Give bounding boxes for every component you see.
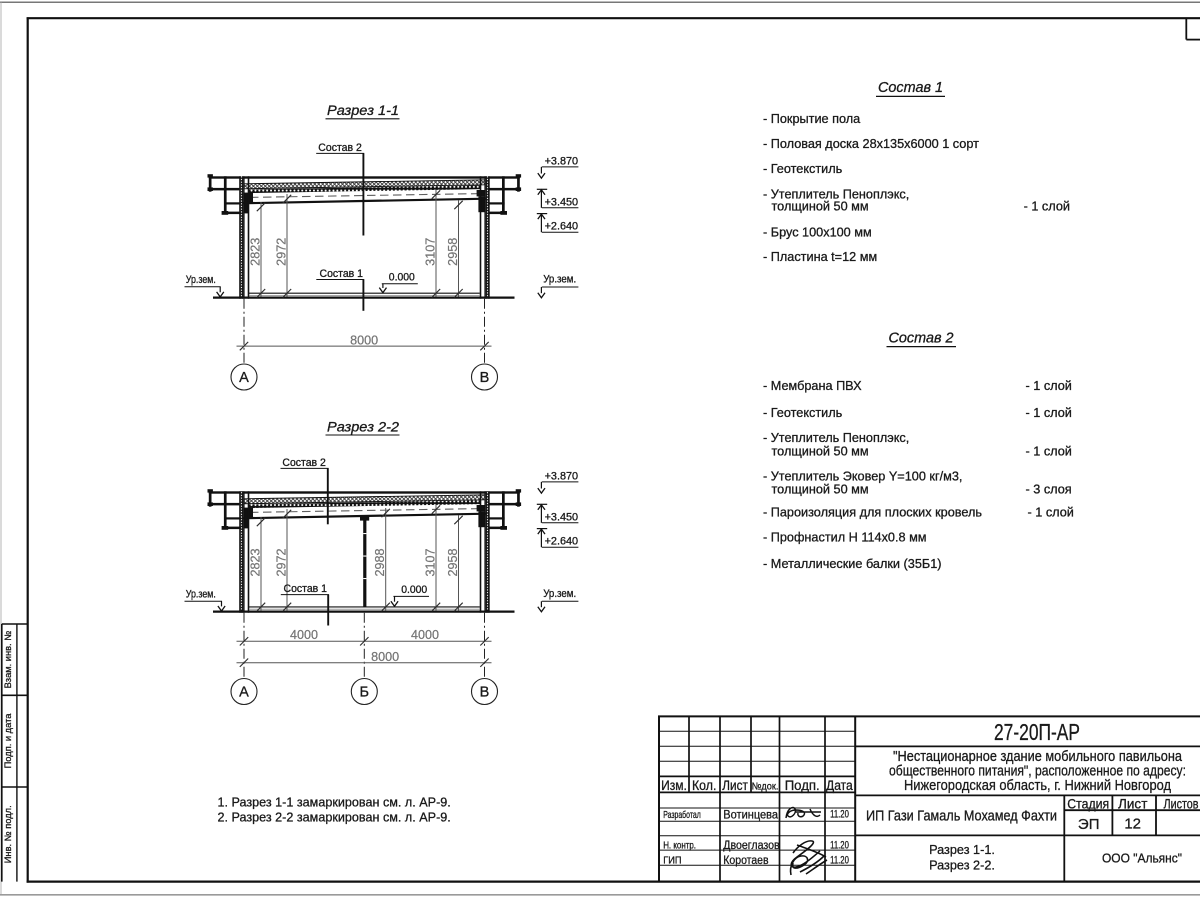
svg-text:толщиной 50 мм: толщиной 50 мм [772, 200, 869, 214]
svg-text:3107: 3107 [423, 238, 437, 266]
svg-text:11.20: 11.20 [830, 840, 849, 852]
svg-text:- 1 слой: - 1 слой [1024, 200, 1070, 214]
svg-text:Кол.: Кол. [692, 778, 716, 793]
svg-text:1. Разрез 1-1 замаркирован см.: 1. Разрез 1-1 замаркирован см. л. АР-9. [218, 794, 451, 809]
svg-text:Подп. и дата: Подп. и дата [3, 713, 13, 769]
svg-text:- Мембрана ПВХ: - Мембрана ПВХ [763, 379, 862, 393]
svg-text:- Утеплитель Эковер Y=100 кг/м: - Утеплитель Эковер Y=100 кг/м3, [763, 469, 962, 483]
svg-text:Ур.зем.: Ур.зем. [186, 588, 216, 600]
svg-text:Состав 1: Состав 1 [320, 268, 364, 280]
svg-text:+3.870: +3.870 [545, 156, 579, 168]
svg-text:2958: 2958 [446, 548, 460, 576]
svg-text:- 1 слой: - 1 слой [1026, 444, 1072, 458]
svg-text:В: В [480, 370, 490, 386]
svg-text:- Пароизоляция для плоских кро: - Пароизоляция для плоских кровель [763, 506, 982, 520]
svg-text:11.20: 11.20 [830, 855, 849, 867]
svg-text:А: А [239, 370, 249, 386]
svg-text:толщиной 50 мм: толщиной 50 мм [772, 483, 869, 497]
svg-text:- Покрытие пола: - Покрытие пола [763, 112, 861, 126]
svg-text:Разрез 1-1: Разрез 1-1 [327, 103, 399, 118]
svg-text:12: 12 [1124, 815, 1141, 832]
svg-text:- 1 слой: - 1 слой [1026, 379, 1072, 393]
svg-text:- Геотекстиль: - Геотекстиль [763, 406, 843, 420]
svg-text:Дата: Дата [826, 778, 853, 793]
svg-text:Листов: Листов [1164, 796, 1199, 811]
svg-text:Разрез 1-1.: Разрез 1-1. [929, 843, 995, 857]
svg-text:- Половая доска 28х135х6000 1: - Половая доска 28х135х6000 1 сорт [763, 137, 979, 151]
svg-text:+3.450: +3.450 [545, 196, 579, 208]
svg-text:+3.870: +3.870 [545, 471, 579, 483]
svg-text:Ур.зем.: Ур.зем. [543, 274, 576, 286]
svg-text:Ур.зем.: Ур.зем. [186, 274, 216, 286]
svg-text:2823: 2823 [248, 548, 262, 576]
svg-text:ЭП: ЭП [1078, 816, 1100, 833]
svg-text:"Нестационарное здание мобильн: "Нестационарное здание мобильного павиль… [893, 749, 1183, 765]
svg-text:+2.640: +2.640 [545, 221, 579, 233]
svg-text:В: В [480, 685, 490, 701]
svg-text:Инв. № подл.: Инв. № подл. [3, 805, 13, 863]
svg-text:2972: 2972 [274, 238, 288, 266]
svg-text:2. Разрез 2-2 замаркирован см.: 2. Разрез 2-2 замаркирован см. л. АР-9. [218, 809, 451, 824]
svg-text:2823: 2823 [248, 238, 262, 266]
svg-text:- 1 слой: - 1 слой [1028, 506, 1074, 520]
svg-text:Состав 1: Состав 1 [284, 583, 328, 595]
svg-text:Состав 1: Состав 1 [878, 79, 943, 96]
svg-text:2972: 2972 [274, 548, 288, 576]
svg-text:Лист: Лист [722, 778, 748, 793]
svg-text:3107: 3107 [423, 548, 437, 576]
svg-text:Разрез 2-2: Разрез 2-2 [327, 419, 400, 434]
svg-text:Состав 2: Состав 2 [282, 457, 326, 469]
svg-text:Н. контр.: Н. контр. [663, 841, 696, 852]
svg-text:- Утеплитель Пеноплэкс,: - Утеплитель Пеноплэкс, [763, 431, 909, 445]
svg-text:ИП Гази Гамаль Мохамед Фахти: ИП Гази Гамаль Мохамед Фахти [866, 809, 1057, 825]
svg-text:- Геотекстиль: - Геотекстиль [763, 162, 843, 176]
svg-text:2958: 2958 [446, 238, 460, 266]
svg-text:4000: 4000 [290, 628, 318, 642]
svg-text:4000: 4000 [411, 628, 439, 642]
svg-text:11.20: 11.20 [830, 809, 849, 821]
svg-text:Состав 2: Состав 2 [318, 142, 362, 154]
svg-text:ГИП: ГИП [663, 855, 681, 866]
svg-text:№док.: №док. [752, 781, 779, 792]
svg-text:+3.450: +3.450 [545, 511, 579, 523]
svg-text:Нижегородская область, г. Нижн: Нижегородская область, г. Нижний Новгоро… [904, 778, 1171, 794]
svg-text:Состав 2: Состав 2 [889, 329, 955, 346]
svg-text:8000: 8000 [350, 334, 378, 348]
svg-text:Подп.: Подп. [785, 778, 820, 793]
svg-text:Изм.: Изм. [661, 778, 687, 793]
svg-text:Лист: Лист [1118, 796, 1148, 811]
svg-text:Разрез 2-2.: Разрез 2-2. [929, 859, 995, 873]
svg-text:Двоеглазов: Двоеглазов [723, 838, 780, 852]
svg-text:+2.640: +2.640 [545, 536, 579, 548]
svg-text:- Брус 100х100 мм: - Брус 100х100 мм [763, 225, 872, 239]
svg-text:- 1 слой: - 1 слой [1026, 406, 1072, 420]
svg-text:27-20П-АР: 27-20П-АР [994, 719, 1080, 745]
svg-text:Вотинцева: Вотинцева [723, 808, 778, 822]
svg-text:А: А [239, 685, 249, 701]
svg-text:- Пластина t=12 мм: - Пластина t=12 мм [763, 250, 877, 264]
svg-text:Взам. инв. №: Взам. инв. № [3, 631, 13, 689]
svg-text:ООО "Альянс": ООО "Альянс" [1102, 850, 1182, 865]
svg-text:Коротаев: Коротаев [723, 853, 769, 867]
svg-text:- 3 слоя: - 3 слоя [1026, 483, 1072, 497]
svg-text:2988: 2988 [373, 548, 387, 576]
svg-text:толщиной 50 мм: толщиной 50 мм [772, 444, 869, 458]
svg-text:Разработал: Разработал [663, 809, 701, 821]
svg-text:Стадия: Стадия [1067, 796, 1109, 811]
svg-text:Ур.зем.: Ур.зем. [543, 588, 576, 600]
svg-text:- Профнастил Н 114х0.8 мм: - Профнастил Н 114х0.8 мм [763, 531, 927, 545]
svg-text:Б: Б [360, 685, 370, 701]
svg-text:8000: 8000 [371, 650, 399, 664]
svg-text:0.000: 0.000 [401, 584, 427, 596]
svg-text:0.000: 0.000 [389, 272, 415, 284]
svg-text:- Металлические балки (35Б1): - Металлические балки (35Б1) [763, 557, 942, 571]
